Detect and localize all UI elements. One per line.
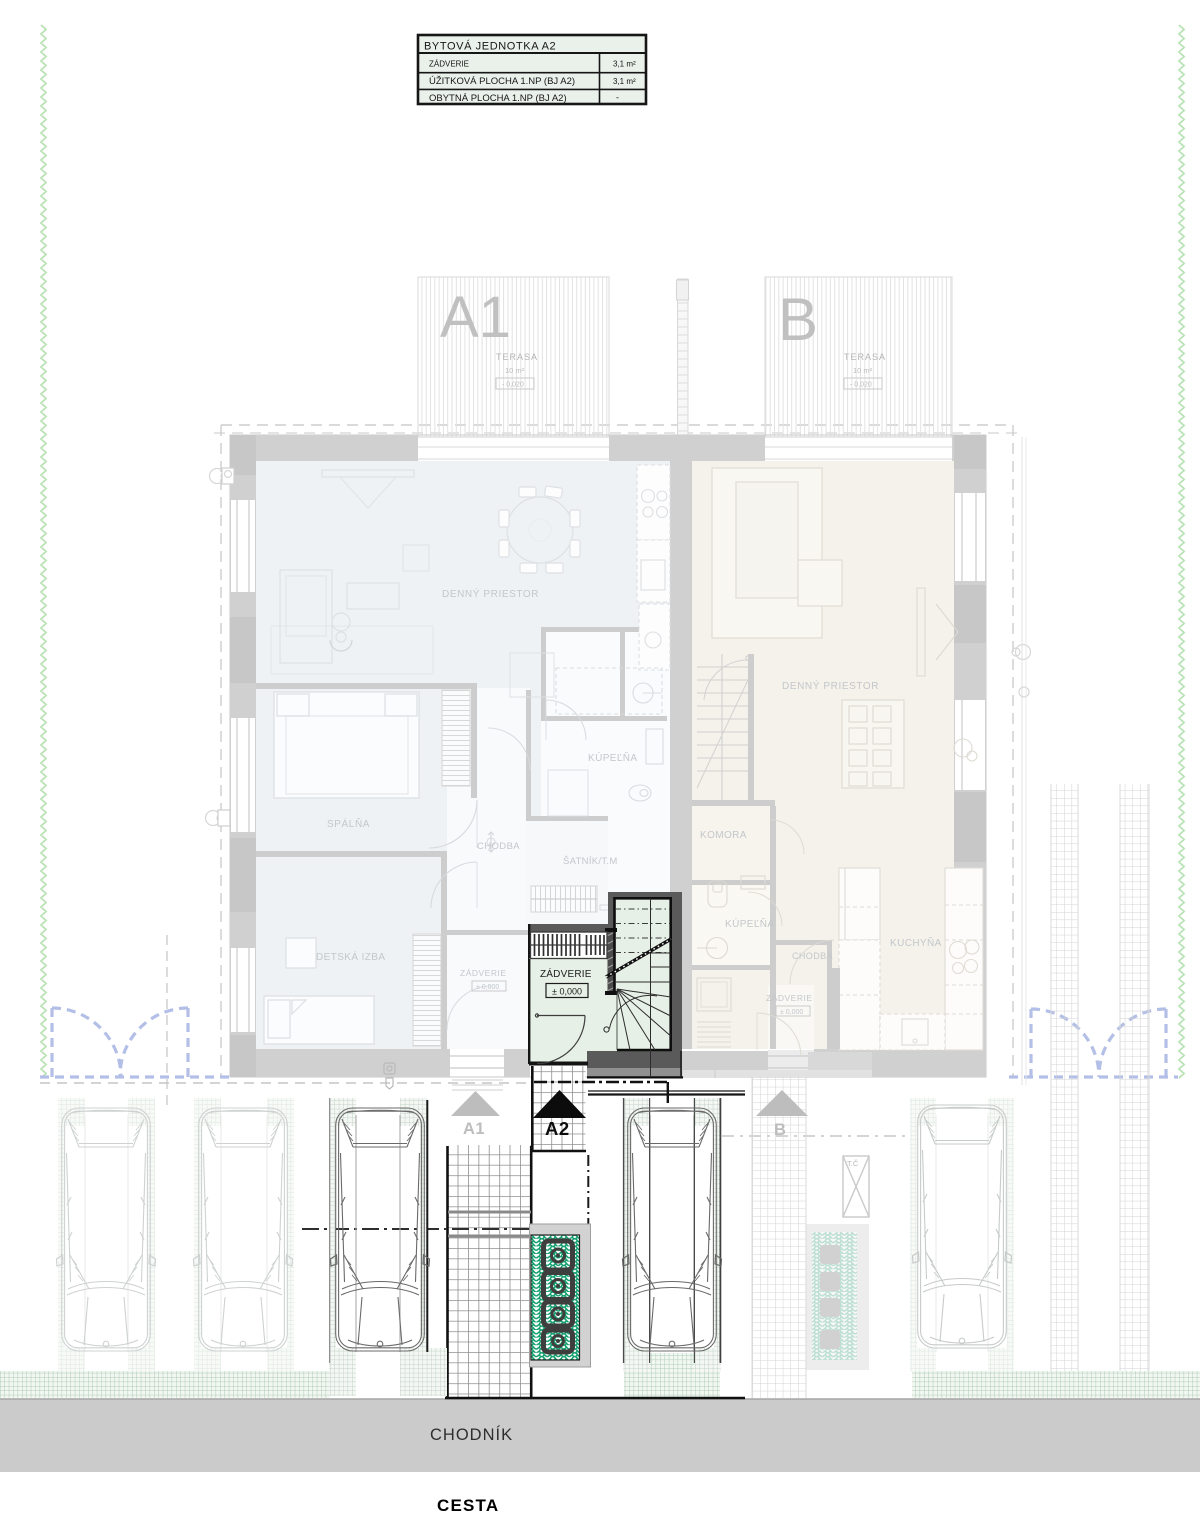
svg-text:KOMORA: KOMORA [700, 830, 747, 841]
svg-text:B: B [778, 286, 818, 353]
svg-text:B: B [774, 1121, 786, 1139]
svg-text:3,1 m²: 3,1 m² [613, 60, 636, 69]
svg-text:CHODNÍK: CHODNÍK [430, 1425, 513, 1444]
svg-text:OBYTNÁ PLOCHA 1.NP (BJ A2): OBYTNÁ PLOCHA 1.NP (BJ A2) [429, 93, 567, 104]
svg-text:A1: A1 [440, 285, 511, 350]
svg-text:CHODBA: CHODBA [792, 951, 833, 961]
svg-text:KUCHYŇA: KUCHYŇA [890, 936, 942, 949]
svg-text:10 m²: 10 m² [505, 366, 525, 375]
svg-text:TERASA: TERASA [496, 352, 538, 362]
svg-text:ŠATNÍK/T.M: ŠATNÍK/T.M [563, 856, 618, 867]
svg-text:ZÁDVERIE: ZÁDVERIE [460, 968, 507, 978]
svg-text:10 m²: 10 m² [853, 366, 873, 375]
svg-text:BYTOVÁ JEDNOTKA A2: BYTOVÁ JEDNOTKA A2 [424, 40, 556, 53]
svg-text:A1: A1 [463, 1120, 485, 1138]
svg-text:ÚŽITKOVÁ PLOCHA 1.NP (BJ A2): ÚŽITKOVÁ PLOCHA 1.NP (BJ A2) [429, 76, 575, 87]
svg-text:± 0,000: ± 0,000 [780, 1009, 803, 1016]
svg-text:- 0,020: - 0,020 [850, 382, 872, 389]
svg-text:± 0,000: ± 0,000 [476, 984, 499, 991]
svg-text:A2: A2 [545, 1118, 570, 1139]
svg-text:TERASA: TERASA [844, 352, 886, 362]
svg-text:-: - [616, 93, 619, 103]
svg-text:ZÁDVERIE: ZÁDVERIE [540, 967, 592, 980]
svg-text:T.Č: T.Č [847, 1159, 859, 1168]
svg-text:CHODBA: CHODBA [477, 841, 520, 852]
svg-text:ZÁDVERIE: ZÁDVERIE [429, 60, 469, 69]
svg-text:DENNÝ PRIESTOR: DENNÝ PRIESTOR [442, 587, 539, 600]
svg-text:KÚPEĽŇA: KÚPEĽŇA [725, 917, 775, 930]
svg-text:3,1 m²: 3,1 m² [613, 77, 636, 86]
svg-text:CESTA: CESTA [437, 1496, 499, 1514]
svg-text:ZÁDVERIE: ZÁDVERIE [766, 993, 813, 1003]
svg-text:± 0,000: ± 0,000 [552, 987, 582, 997]
svg-text:DETSKÁ IZBA: DETSKÁ IZBA [316, 950, 385, 963]
svg-text:SPÁLŇA: SPÁLŇA [327, 817, 370, 830]
svg-text:DENNÝ PRIESTOR: DENNÝ PRIESTOR [782, 679, 879, 692]
svg-text:KÚPEĽŇA: KÚPEĽŇA [588, 751, 638, 764]
svg-text:- 0,020: - 0,020 [502, 382, 524, 389]
